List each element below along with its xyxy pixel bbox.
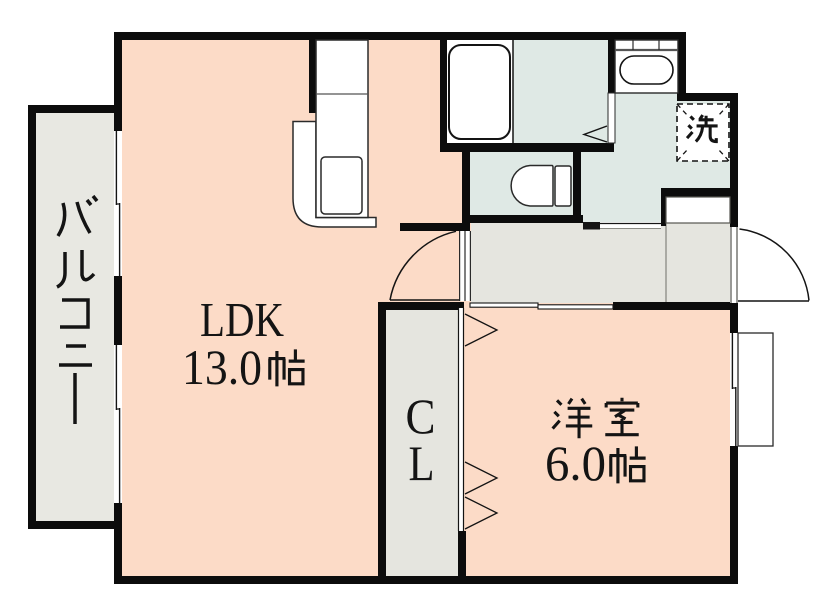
svg-text:13.0: 13.0 xyxy=(182,339,262,395)
svg-text:L: L xyxy=(409,435,435,491)
svg-text:6.0: 6.0 xyxy=(545,435,606,491)
